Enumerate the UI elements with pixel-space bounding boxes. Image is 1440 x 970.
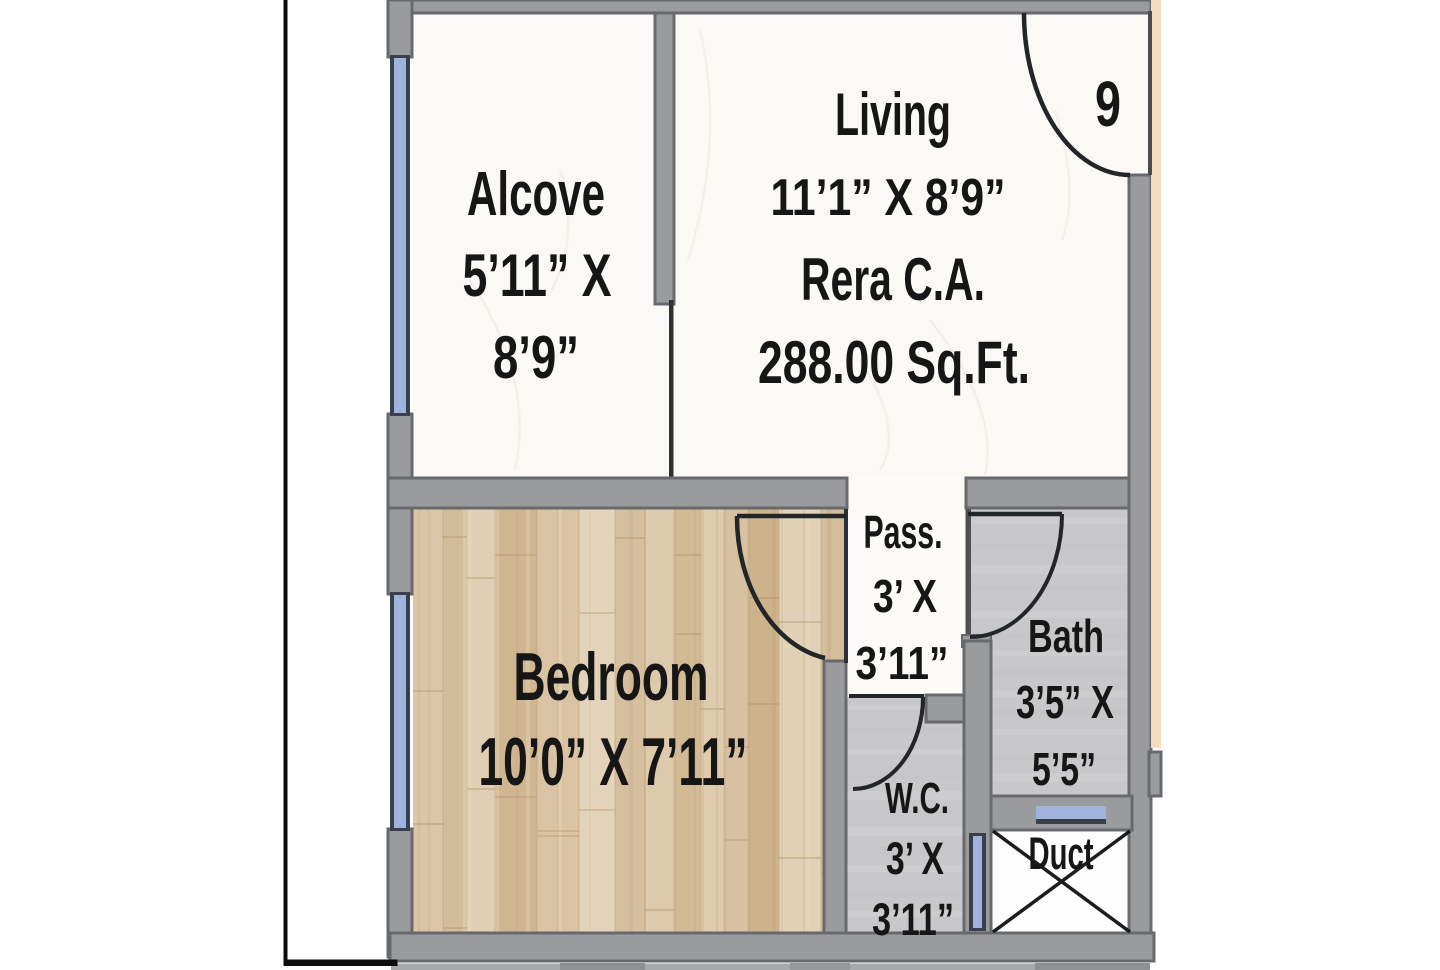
svg-text:Living: Living — [835, 81, 951, 148]
svg-text:8’9”: 8’9” — [493, 324, 579, 391]
svg-text:3’ X: 3’ X — [873, 570, 937, 622]
svg-text:Rera C.A.: Rera C.A. — [801, 246, 985, 313]
svg-text:9: 9 — [1095, 68, 1121, 140]
svg-text:W.C.: W.C. — [885, 774, 949, 823]
svg-text:Pass.: Pass. — [864, 506, 943, 558]
svg-text:3’11”: 3’11” — [872, 894, 954, 945]
svg-text:288.00 Sq.Ft.: 288.00 Sq.Ft. — [758, 329, 1030, 396]
svg-text:3’11”: 3’11” — [856, 637, 949, 689]
svg-text:Bath: Bath — [1028, 610, 1104, 662]
svg-text:Alcove: Alcove — [467, 160, 605, 229]
svg-text:10’0” X 7’11”: 10’0” X 7’11” — [479, 724, 748, 800]
svg-text:Bedroom: Bedroom — [514, 639, 709, 715]
svg-text:5’5”: 5’5” — [1032, 743, 1096, 795]
svg-text:Duct: Duct — [1029, 828, 1094, 879]
svg-text:3’5” X: 3’5” X — [1016, 676, 1114, 728]
svg-text:3’ X: 3’ X — [886, 833, 944, 884]
svg-text:5’11” X: 5’11” X — [463, 242, 612, 309]
svg-text:11’1” X 8’9”: 11’1” X 8’9” — [771, 169, 1006, 227]
